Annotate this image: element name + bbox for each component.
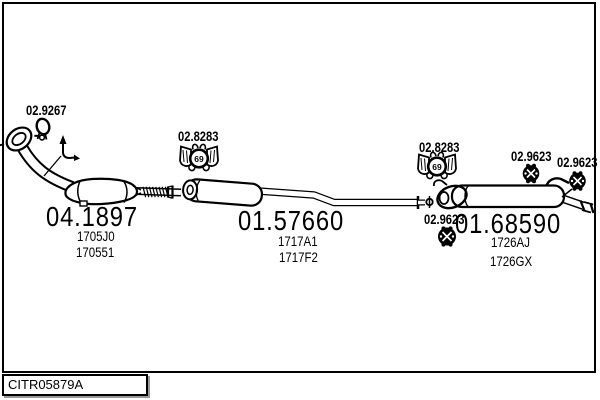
mount-diameter-label: 69 <box>194 154 204 164</box>
front-clamp-code: 02.9267 <box>26 103 66 117</box>
rear-clamp-bottom-icon <box>438 226 456 246</box>
front-downpipe <box>22 147 72 187</box>
middle-part-ref-2: 1717F2 <box>279 250 318 264</box>
pipe-end-joint <box>418 196 433 209</box>
front-clamp-icon <box>35 117 51 140</box>
middle-silencer-body <box>182 178 262 206</box>
front-part-ref-1: 1705J0 <box>77 229 115 243</box>
rear-clamp-top-outer-icon <box>569 171 586 190</box>
middle-part-ref-1: 1717A1 <box>278 234 318 248</box>
rear-mount-code: 02.8283 <box>419 140 459 154</box>
mount-diameter-label: 69 <box>432 162 442 172</box>
middle-part-number: 01.57660 <box>238 207 344 235</box>
rear-mount-icon: 69 <box>418 152 456 178</box>
rear-part-ref-2: 1726GX <box>490 254 532 268</box>
catalog-code-box: CITR05879A <box>2 374 148 396</box>
exhaust-line-art: 69 69 <box>0 0 600 400</box>
exhaust-parts-diagram: 69 69 <box>0 0 600 400</box>
rear-clamp-top-inner-code: 02.9623 <box>511 149 551 163</box>
rear-clamp-top-inner-icon <box>523 164 540 183</box>
front-part-number: 04.1897 <box>46 203 138 231</box>
flex-pipe <box>136 187 181 197</box>
front-part-ref-2: 170551 <box>76 245 114 259</box>
rear-clamp-top-outer-code: 02.9623 <box>557 155 597 169</box>
intermediate-pipe <box>258 191 418 203</box>
rear-part-ref-1: 1726AJ <box>491 235 530 249</box>
middle-mount-code: 02.8283 <box>178 129 218 143</box>
catalog-code: CITR05879A <box>8 377 83 392</box>
middle-mount-icon: 69 <box>180 144 218 170</box>
orientation-arrow-icon <box>44 135 80 176</box>
